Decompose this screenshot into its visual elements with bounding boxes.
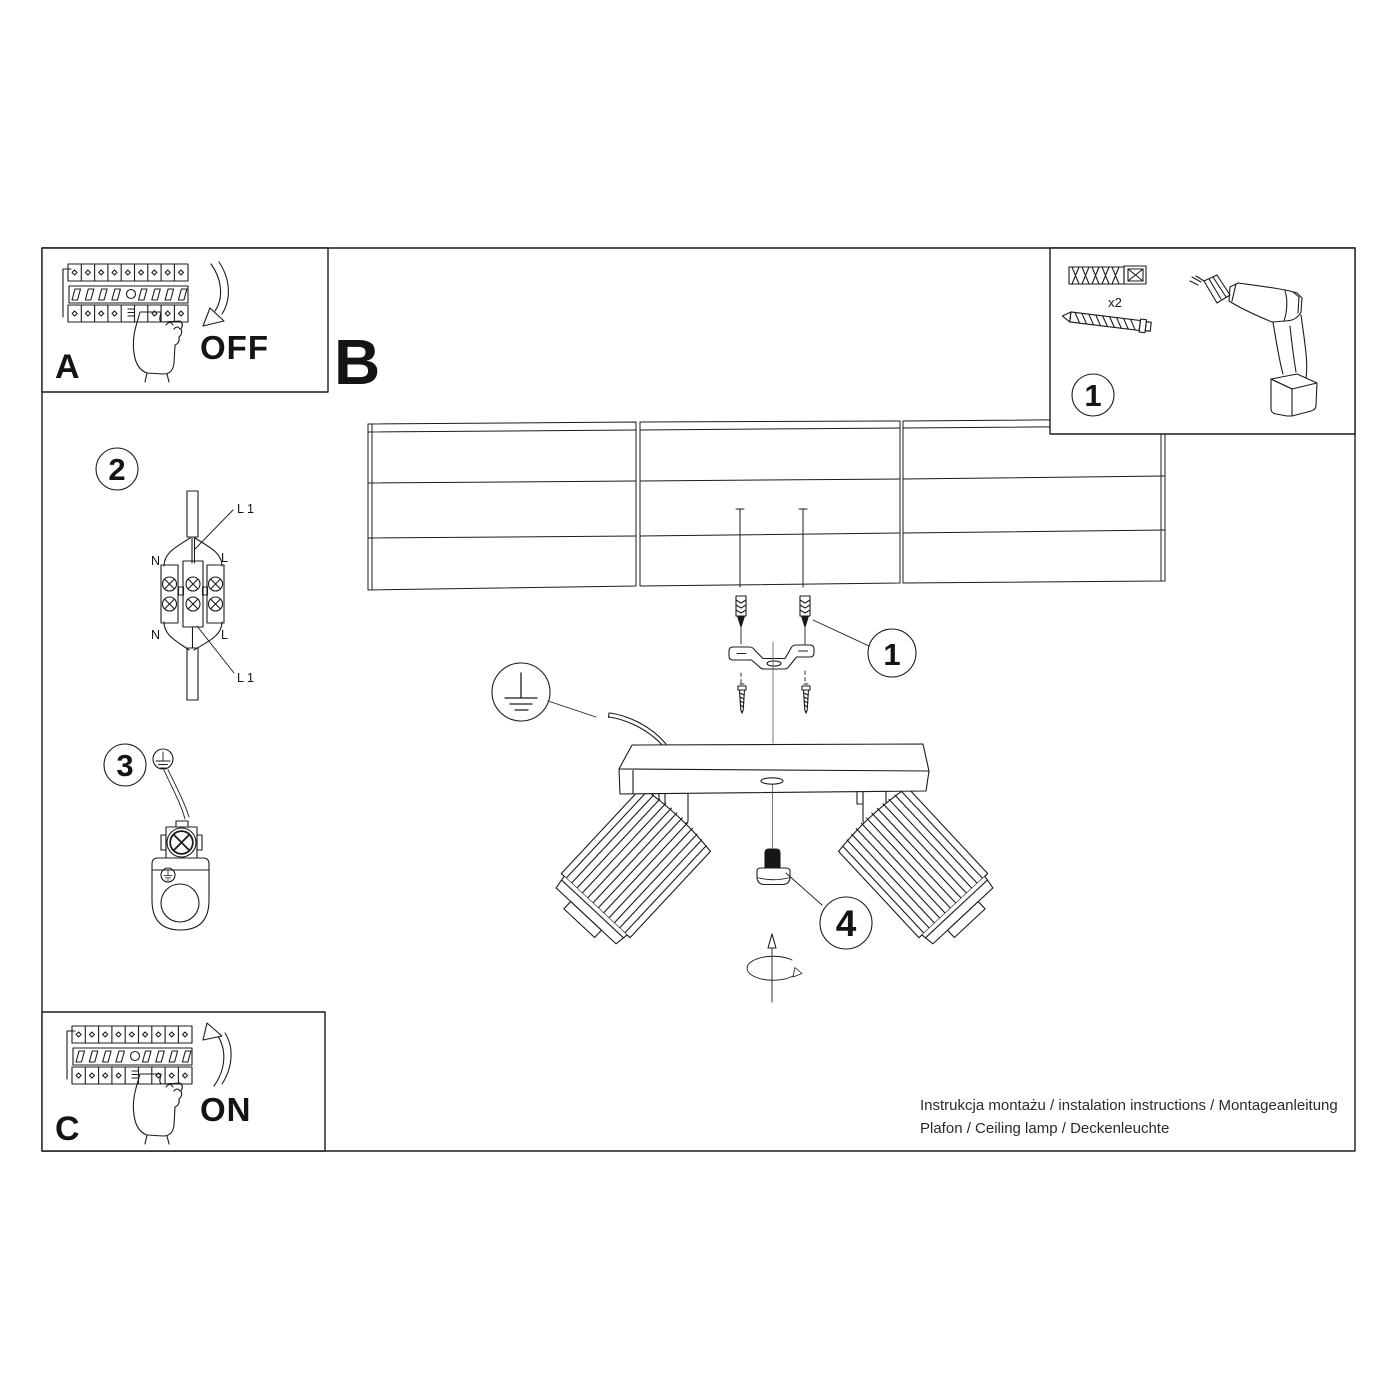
earth-terminal-icon xyxy=(161,821,202,858)
leader-to-badge-1 xyxy=(813,620,869,646)
tools-panel: x2 1 xyxy=(1050,248,1355,434)
earth-wire xyxy=(164,770,189,820)
svg-text:1: 1 xyxy=(1084,378,1101,413)
screw-icon xyxy=(738,684,746,713)
drill-position-lines xyxy=(736,509,807,587)
ceiling-lamp-icon: 4 xyxy=(492,663,1004,1002)
label-l1-top: L 1 xyxy=(237,502,254,516)
panel-a-letter: A xyxy=(55,348,80,386)
callout-1-badge: 1 xyxy=(868,629,916,677)
panel-c-letter: C xyxy=(55,1110,80,1148)
step-4-badge: 4 xyxy=(820,897,872,949)
screw-icon xyxy=(802,684,810,713)
earth-connection-diagram: 3 xyxy=(104,744,209,930)
label-n-bottom: N xyxy=(151,628,160,642)
leader-to-badge-4 xyxy=(786,873,822,905)
step-3-badge: 3 xyxy=(104,744,146,786)
earth-symbol-icon xyxy=(492,663,596,721)
ceiling-planks-icon xyxy=(368,419,1165,590)
quantity-label: x2 xyxy=(1108,295,1122,310)
section-letter-b: B xyxy=(334,326,380,398)
svg-text:1: 1 xyxy=(883,637,900,672)
on-label: ON xyxy=(200,1091,252,1128)
wall-plug-icon xyxy=(800,596,810,627)
cable-bottom xyxy=(187,648,198,700)
lamp-base-bar xyxy=(619,744,929,794)
spot-shade-right xyxy=(835,783,1004,955)
wall-plug-icon xyxy=(736,596,746,627)
wire-l1-top xyxy=(192,538,195,563)
label-l-bottom: L xyxy=(221,628,228,642)
svg-text:3: 3 xyxy=(116,748,133,783)
footer-line-1: Instrukcja montażu / instalation instruc… xyxy=(920,1097,1338,1114)
off-label: OFF xyxy=(200,329,269,366)
label-n-top: N xyxy=(151,554,160,568)
step-2-badge: 2 xyxy=(96,448,138,490)
cable-split-top xyxy=(164,538,222,566)
label-l1-bottom: L 1 xyxy=(237,671,254,685)
thumb-screw-icon xyxy=(757,849,790,885)
spot-shade-left xyxy=(545,783,714,955)
mounting-hardware: 1 xyxy=(729,596,916,743)
rotation-arrow-icon xyxy=(747,934,802,1002)
instruction-sheet: A OFF B x2 xyxy=(0,0,1400,1400)
footer-line-2: Plafon / Ceiling lamp / Deckenleuchte xyxy=(920,1120,1169,1137)
leader-l1-top xyxy=(195,510,233,549)
svg-text:4: 4 xyxy=(836,903,857,944)
panel-a: A OFF xyxy=(42,248,328,392)
panel-c: C ON xyxy=(42,1012,325,1151)
leader-l1-bottom xyxy=(197,626,234,673)
terminal-block-icon xyxy=(161,561,224,627)
supply-wire xyxy=(609,713,667,746)
wiring-diagram: 2 N L N L L 1 L 1 xyxy=(96,448,254,700)
cable-top xyxy=(187,491,198,537)
footer: Instrukcja montażu / instalation instruc… xyxy=(920,1097,1338,1137)
strain-relief-bracket-icon xyxy=(152,858,209,930)
label-l-top: L xyxy=(221,551,228,565)
panel-a-box xyxy=(42,248,328,392)
svg-text:2: 2 xyxy=(108,452,125,487)
mounting-bracket-icon xyxy=(729,645,814,669)
earth-symbol-small-icon xyxy=(153,749,173,769)
